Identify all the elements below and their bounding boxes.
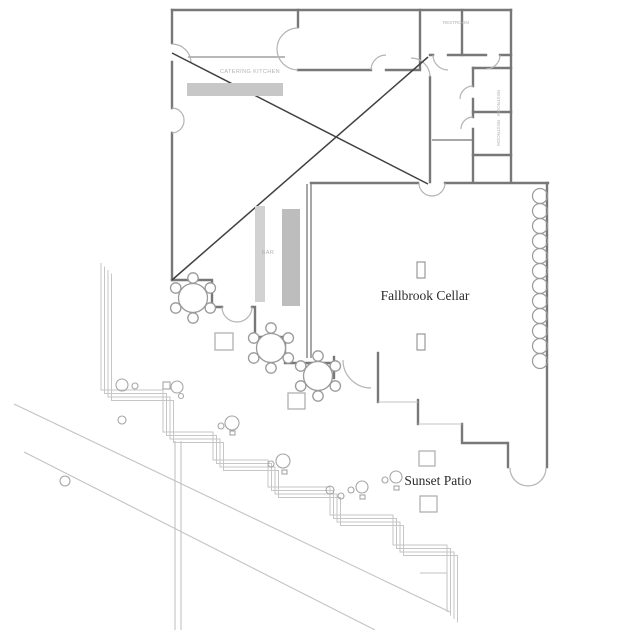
table-top bbox=[257, 334, 286, 363]
barrel bbox=[533, 204, 548, 219]
barrel bbox=[533, 249, 548, 264]
barrel bbox=[533, 324, 548, 339]
patio-label: Sunset Patio bbox=[404, 473, 471, 488]
kitchen-counter bbox=[187, 83, 283, 96]
barrel bbox=[533, 234, 548, 249]
lower-patio-corner bbox=[420, 573, 447, 612]
terrace-stairs bbox=[101, 263, 458, 623]
barrel bbox=[533, 354, 548, 369]
planter bbox=[420, 496, 437, 512]
storage-room-walls bbox=[298, 10, 420, 70]
wing-room-door-1-icon bbox=[460, 86, 473, 99]
west-door-upper-icon bbox=[172, 44, 191, 63]
restroom-1-label: RESTROOM bbox=[496, 90, 501, 116]
restroom-2-label: RESTROOM bbox=[496, 120, 501, 146]
cellar-west-wall bbox=[307, 184, 311, 358]
cellar-column-1 bbox=[417, 262, 425, 278]
barrel bbox=[533, 294, 548, 309]
kitchen-label: CATERING KITCHEN bbox=[220, 69, 280, 75]
barrel bbox=[533, 264, 548, 279]
west-door-lower-icon bbox=[172, 108, 184, 133]
cellar-north-double-door-icon bbox=[419, 183, 445, 196]
stair-line-3 bbox=[108, 270, 454, 619]
planter bbox=[419, 451, 435, 466]
table-top bbox=[304, 362, 333, 391]
light-lines bbox=[14, 57, 462, 630]
planter bbox=[288, 393, 305, 409]
bar-counter-back bbox=[282, 209, 300, 306]
stair-line-1 bbox=[101, 263, 447, 612]
barrel bbox=[533, 309, 548, 324]
barrel bbox=[533, 279, 548, 294]
walkway-lines bbox=[175, 441, 181, 630]
wing-room-dividers bbox=[473, 68, 511, 155]
wing-room-door-2-icon bbox=[461, 117, 473, 129]
stair-line-2 bbox=[105, 267, 451, 616]
slope-line-lower bbox=[24, 452, 375, 630]
cellar-south-double-door-icon bbox=[510, 468, 546, 486]
storage-south-door-icon bbox=[371, 55, 386, 70]
patio-step-wall-east bbox=[462, 424, 508, 467]
floor-plan-svg: Fallbrook Cellar Sunset Patio CATERING K… bbox=[0, 0, 638, 630]
building-walls bbox=[172, 10, 548, 467]
stair-line-4 bbox=[112, 274, 458, 623]
patio-double-door-icon bbox=[222, 307, 252, 322]
main-room-label: Fallbrook Cellar bbox=[381, 288, 470, 303]
floor-plan-page: Fallbrook Cellar Sunset Patio CATERING K… bbox=[0, 0, 638, 630]
storage-double-door-icon bbox=[277, 28, 298, 70]
bar-label: BAR bbox=[262, 250, 275, 256]
table-top bbox=[179, 284, 208, 313]
patio-single-door-icon bbox=[343, 360, 371, 388]
wine-barrels bbox=[533, 189, 548, 369]
cross-line-a bbox=[172, 53, 428, 184]
barrel bbox=[533, 189, 548, 204]
restroom-top-door-1-icon bbox=[433, 55, 448, 70]
restroom-top-label: RESTROOM bbox=[443, 20, 469, 25]
cellar-column-2 bbox=[417, 334, 425, 350]
barrel bbox=[533, 339, 548, 354]
barrel bbox=[533, 219, 548, 234]
planter bbox=[215, 333, 233, 350]
